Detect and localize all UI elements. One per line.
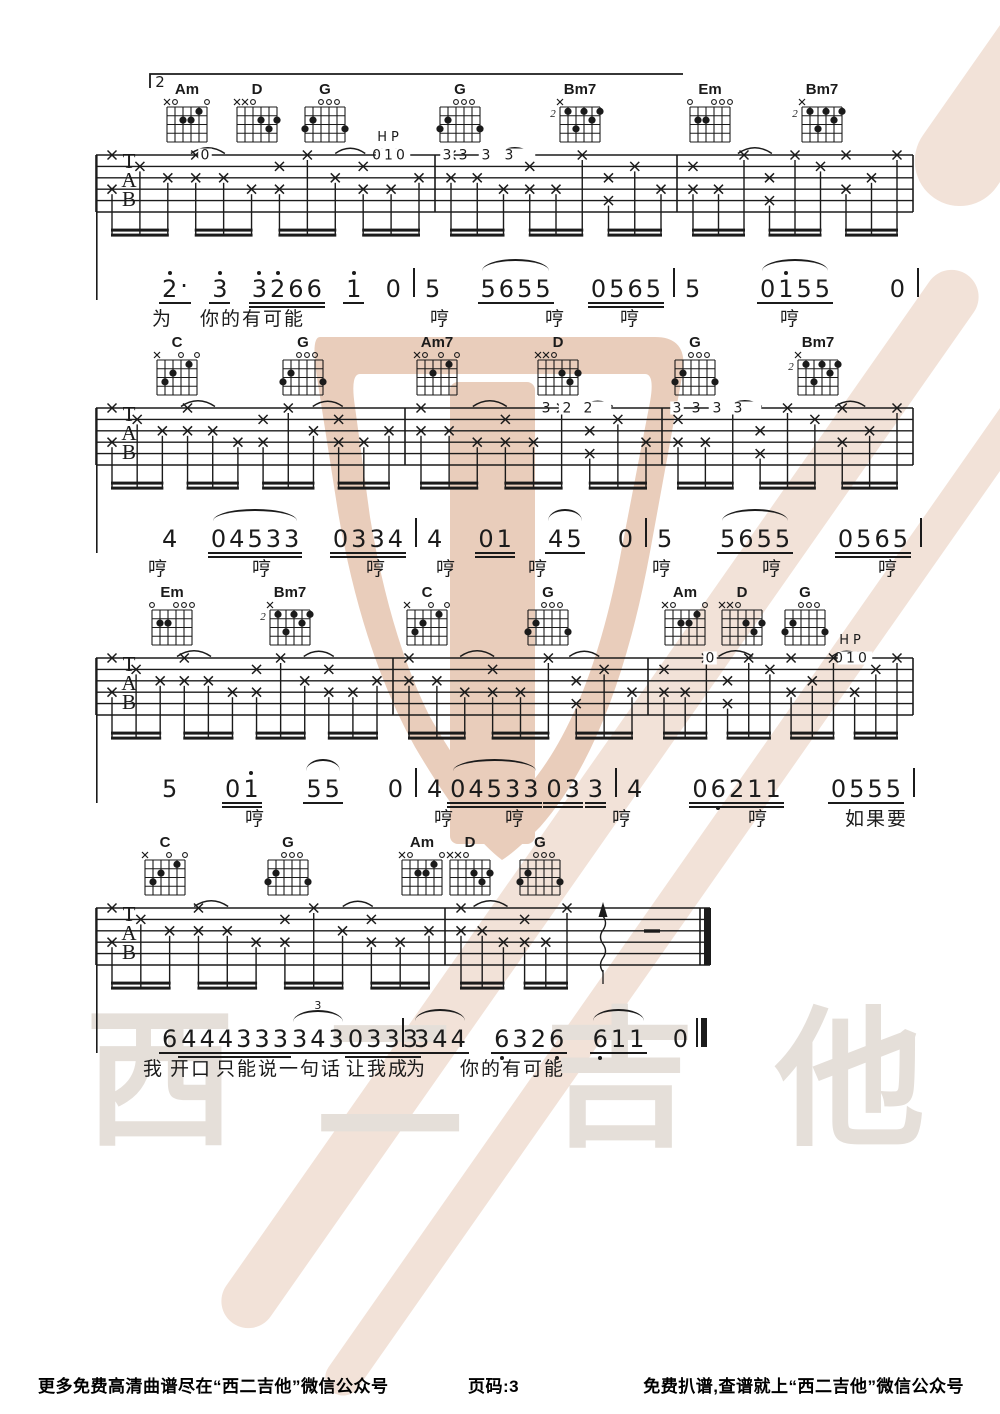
note-group: 0155 — [758, 271, 832, 301]
note-group: 611 — [591, 1021, 647, 1051]
note-group: 6326 — [492, 1021, 566, 1051]
jianpu-note: 6 — [874, 521, 889, 551]
jianpu-note: 5 — [481, 271, 496, 301]
lyric-token: 你的有可能 — [200, 304, 305, 331]
jianpu-note: 3 — [266, 521, 281, 551]
jianpu-note: 0 — [692, 771, 707, 801]
jianpu-note: 3 — [254, 1021, 269, 1051]
footer-promo-right: 免费扒谱,查谱就上“西二吉他”微信公众号 — [643, 1372, 964, 1397]
jianpu-note: 4 — [432, 1021, 447, 1051]
jianpu-note: 2 — [531, 1021, 546, 1051]
jianpu-note: 6 — [549, 1021, 564, 1051]
note-group: 0 — [384, 271, 403, 301]
jianpu-note: 0 — [591, 271, 606, 301]
jianpu-note: 6 — [738, 521, 753, 551]
jianpu-note: 1 — [778, 271, 793, 301]
note-group: 4 — [625, 771, 644, 801]
measure-barline — [913, 768, 915, 797]
final-barline — [701, 1018, 707, 1047]
jianpu-note: 5 — [646, 271, 661, 301]
lyric-token: 开口 — [170, 1054, 212, 1081]
jianpu-note: 6 — [162, 1021, 177, 1051]
final-barline — [696, 1018, 698, 1047]
note-group: 0 — [671, 1021, 690, 1051]
jianpu-note: 0 — [333, 521, 348, 551]
jianpu-note: 0 — [831, 771, 846, 801]
jianpu-note: 4 — [451, 1021, 466, 1051]
note-group: 3 — [586, 771, 605, 801]
note-group: 06211 — [690, 771, 782, 801]
lyric-token: 哼 — [430, 304, 451, 331]
jianpu-note: 5 — [815, 271, 830, 301]
lyric-token: 哼 — [652, 554, 673, 581]
jianpu-note: 0 — [450, 771, 465, 801]
jianpu-note: 1 — [747, 771, 762, 801]
jianpu-note: 3 — [366, 1021, 381, 1051]
jianpu-note: 4 — [218, 1021, 233, 1051]
jianpu-measure: 34463266110 — [402, 1015, 700, 1051]
jianpu-note: 4 — [627, 771, 642, 801]
jianpu-note: 4 — [388, 521, 403, 551]
slur-arc — [762, 259, 829, 271]
note-group: 45 — [546, 521, 584, 551]
jianpu-note: 1 — [243, 771, 258, 801]
jianpu-note: 4 — [427, 521, 442, 551]
note-group: 5 — [683, 271, 702, 301]
jianpu-note: 6 — [593, 1021, 608, 1051]
slur-arc — [415, 1009, 465, 1021]
measure-barline — [920, 518, 922, 547]
note-group: 01 — [476, 521, 514, 551]
jianpu-note: 3 — [212, 271, 227, 301]
jianpu-note: 3 — [512, 1021, 527, 1051]
jianpu-measure: 2·3326610 — [150, 265, 413, 301]
jianpu-note: 4 — [427, 771, 442, 801]
jianpu-note: 4 — [181, 1021, 196, 1051]
jianpu-note: 2 — [270, 271, 285, 301]
jianpu-note: 2 — [162, 271, 177, 301]
lyric-token: 让我成 — [346, 1054, 409, 1081]
lyric-token: 哼 — [528, 554, 549, 581]
lyric-token: 为 — [406, 1054, 427, 1081]
jianpu-line-4: 64443333343033334463266110我开口只能说一句话让我成为你… — [0, 1015, 1000, 1099]
jianpu-note: 3 — [351, 521, 366, 551]
note-group: 04533 — [448, 771, 540, 801]
note-group: 5655 — [479, 271, 553, 301]
lyric-token: 哼 — [366, 554, 387, 581]
jianpu-note: 0 — [348, 1021, 363, 1051]
jianpu-note: 4 — [468, 771, 483, 801]
jianpu-measure: 4062110555 — [615, 765, 913, 801]
lyric-token: 哼 — [762, 554, 783, 581]
jianpu-note: 1 — [497, 521, 512, 551]
jianpu-note: 4 — [229, 521, 244, 551]
jianpu-note: 1 — [629, 1021, 644, 1051]
jianpu-note: 5 — [886, 771, 901, 801]
jianpu-line-1: 2·3326610556550565501550为你的有可能哼哼哼哼 — [0, 265, 1000, 349]
jianpu-note: 3 — [565, 771, 580, 801]
lyric-token: 我 — [143, 1054, 164, 1081]
jianpu-note: 6 — [494, 1021, 509, 1051]
jianpu-note: 4 — [310, 1021, 325, 1051]
note-group: 4 — [425, 771, 444, 801]
jianpu-measure: 4045330334 — [150, 515, 415, 551]
lyric-token: 哼 — [748, 804, 769, 831]
jianpu-note: 0 — [618, 521, 633, 551]
jianpu-note: 5 — [425, 271, 440, 301]
lyric-token: 哼 — [620, 304, 641, 331]
note-group: 3266 — [250, 271, 324, 301]
note-group: 5 — [160, 771, 179, 801]
jianpu-note: 5 — [867, 771, 882, 801]
jianpu-note: 5 — [566, 521, 581, 551]
note-group: 0 — [616, 521, 635, 551]
note-group: 03 — [544, 771, 582, 801]
jianpu-note: 3 — [414, 1021, 429, 1051]
jianpu-note: 0 — [211, 521, 226, 551]
jianpu-note: 1 — [346, 271, 361, 301]
footer-promo-left: 更多免费高清曲谱尽在“西二吉他”微信公众号 — [38, 1372, 389, 1397]
lyric-token: 哼 — [612, 804, 633, 831]
note-group: 0334 — [331, 521, 405, 551]
jianpu-note: 5 — [487, 771, 502, 801]
jianpu-note: 4 — [200, 1021, 215, 1051]
jianpu-note: 4 — [548, 521, 563, 551]
note-group: 4 — [425, 521, 444, 551]
lyric-token: 只能说一句话 — [216, 1054, 342, 1081]
jianpu-note: 0 — [225, 771, 240, 801]
lyric-token: 哼 — [505, 804, 526, 831]
jianpu-note: 2 — [729, 771, 744, 801]
jianpu-line-3: 5015504045330334062110555哼哼哼哼哼如果要 — [0, 765, 1000, 849]
note-group: 01 — [223, 771, 261, 801]
jianpu-note: 5 — [535, 271, 550, 301]
jianpu-note: 6 — [627, 271, 642, 301]
note-group: 5 — [423, 271, 442, 301]
lyric-token: 哼 — [545, 304, 566, 331]
note-group: 0565 — [589, 271, 663, 301]
note-group: 5655 — [718, 521, 792, 551]
jianpu-note: 5 — [162, 771, 177, 801]
jianpu-note: 0 — [673, 1021, 688, 1051]
jianpu-line-2: 4045330334401450556550565哼哼哼哼哼哼哼哼 — [0, 515, 1000, 599]
lyric-token: 哼 — [878, 554, 899, 581]
note-group: 2· — [160, 271, 190, 301]
sheet-music-page: 西二吉他 2TAB0HP0103333AmDGGBm72EmBm72TAB322… — [0, 0, 1000, 1414]
note-group: 0565 — [836, 521, 910, 551]
note-group: 3 — [210, 271, 229, 301]
jianpu-note: 5 — [685, 271, 700, 301]
jianpu-note: 0 — [386, 271, 401, 301]
jianpu-note: 5 — [657, 521, 672, 551]
note-group: 6 — [160, 1021, 179, 1051]
slur-arc — [593, 1009, 643, 1021]
note-group: 444333 — [179, 1021, 290, 1051]
jianpu-note: 5 — [849, 771, 864, 801]
note-group: 0 — [386, 771, 405, 801]
note-group: 5 — [655, 521, 674, 551]
jianpu-note: 5 — [797, 271, 812, 301]
jianpu-note: 3 — [284, 521, 299, 551]
jianpu-note: 3 — [505, 771, 520, 801]
jianpu-note: 5 — [609, 271, 624, 301]
lyric-token: 如果要 — [845, 804, 908, 831]
jianpu-note: 3 — [236, 1021, 251, 1051]
jianpu-note: 5 — [856, 521, 871, 551]
jianpu-measure: 404533033 — [415, 765, 615, 801]
jianpu-note: 5 — [325, 771, 340, 801]
jianpu-measure: 556550565 — [413, 265, 673, 301]
note-group: 04533 — [209, 521, 301, 551]
jianpu-measure: 401450 — [415, 515, 645, 551]
lyric-token: 哼 — [436, 554, 457, 581]
jianpu-note: 5 — [757, 521, 772, 551]
jianpu-note: 0 — [546, 771, 561, 801]
jianpu-note: 0 — [478, 521, 493, 551]
slur-arc — [306, 759, 340, 771]
lyric-token: 你的有可能 — [460, 1054, 565, 1081]
slur-arc — [548, 509, 582, 521]
jianpu-note: 5 — [247, 521, 262, 551]
note-group: 0555 — [829, 771, 903, 801]
jianpu-note: 5 — [517, 271, 532, 301]
jianpu-note: 3 — [384, 1021, 399, 1051]
jianpu-note: 3 — [252, 271, 267, 301]
slur-arc — [453, 759, 536, 771]
note-group: 4 — [160, 521, 179, 551]
jianpu-measure: 501550 — [673, 265, 917, 301]
jianpu-note: 6 — [499, 271, 514, 301]
jianpu-measure: 501550 — [150, 765, 415, 801]
page-number: 页码:3 — [468, 1372, 519, 1397]
note-group: 55 — [304, 771, 342, 801]
jianpu-note: 3 — [369, 521, 384, 551]
jianpu-note: 3 — [273, 1021, 288, 1051]
slur-arc — [213, 509, 296, 521]
measure-barline — [917, 268, 919, 297]
lyric-token: 哼 — [780, 304, 801, 331]
jianpu-note: 6 — [288, 271, 303, 301]
jianpu-note: 1 — [766, 771, 781, 801]
jianpu-note: 3 — [329, 1021, 344, 1051]
note-group: 3343 — [290, 1021, 346, 1051]
jianpu-note: 5 — [720, 521, 735, 551]
note-group: 1 — [344, 271, 363, 301]
slur-arc — [722, 509, 789, 521]
jianpu-note: 0 — [890, 271, 905, 301]
jianpu-note: 6 — [711, 771, 726, 801]
jianpu-measure: 644433333430333 — [150, 1015, 402, 1051]
jianpu-note: 3 — [292, 1021, 307, 1051]
jianpu-note: 5 — [893, 521, 908, 551]
jianpu-layer: 2·3326610556550565501550为你的有可能哼哼哼哼404533… — [0, 0, 1000, 1414]
lyric-token: 为 — [152, 304, 173, 331]
lyric-token: 哼 — [245, 804, 266, 831]
slur-arc — [482, 259, 549, 271]
jianpu-note: 4 — [162, 521, 177, 551]
lyric-token: 哼 — [434, 804, 455, 831]
jianpu-note: 5 — [775, 521, 790, 551]
jianpu-note: 1 — [611, 1021, 626, 1051]
note-group: 0 — [888, 271, 907, 301]
jianpu-note: 6 — [307, 271, 322, 301]
jianpu-note: 3 — [523, 771, 538, 801]
lyric-token: 哼 — [148, 554, 169, 581]
jianpu-measure: 556550565 — [645, 515, 920, 551]
lyric-token: 哼 — [252, 554, 273, 581]
jianpu-note: 0 — [388, 771, 403, 801]
note-group: 344 — [412, 1021, 468, 1051]
jianpu-note: 0 — [760, 271, 775, 301]
jianpu-note: 0 — [838, 521, 853, 551]
jianpu-note: 3 — [588, 771, 603, 801]
jianpu-note: 5 — [306, 771, 321, 801]
